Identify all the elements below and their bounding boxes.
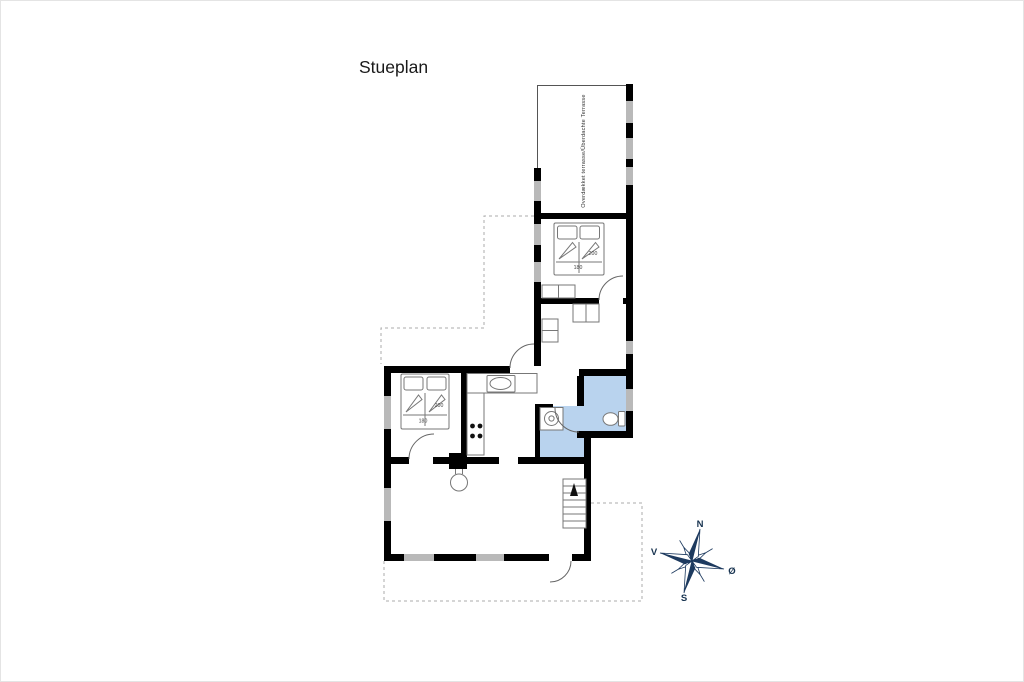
floor-plan-drawing: Stueplan	[1, 1, 1024, 682]
chimney	[449, 453, 467, 469]
wood-stove	[451, 469, 468, 491]
pillow	[580, 226, 600, 239]
double-bed-1: 200 180	[554, 223, 604, 275]
bed2-length-label: 200	[435, 403, 444, 409]
bedroom2-window	[384, 396, 391, 429]
closets	[542, 285, 599, 342]
kitchen-unit	[467, 374, 537, 456]
bathroom-floor	[579, 373, 626, 438]
bed1-width-label: 180	[574, 265, 583, 271]
compass-west-label: V	[651, 547, 658, 558]
bathroom-window	[626, 389, 633, 411]
bedroom1-window	[534, 262, 541, 282]
terrace-window	[626, 138, 633, 159]
terrace-window	[626, 101, 633, 123]
bed1-length-label: 200	[589, 251, 598, 257]
bedroom2-kitchen-divider	[461, 373, 467, 463]
bedroom1-door	[599, 276, 623, 300]
terrace-window	[626, 167, 633, 185]
hall-window	[626, 341, 633, 354]
entrance-door	[550, 561, 571, 582]
pillow	[558, 226, 578, 239]
double-bed-2: 200 180	[401, 374, 449, 429]
compass-south-label: S	[681, 593, 687, 604]
hall-door	[510, 344, 534, 368]
staircase	[563, 479, 586, 528]
pillow	[404, 377, 423, 390]
living-room-window	[384, 488, 391, 521]
pillow	[427, 377, 446, 390]
windows	[384, 101, 633, 561]
bedroom1-window	[534, 224, 541, 245]
covered-terrace-label: Overdækket terrasse/Überdachte Terrasse	[580, 94, 587, 207]
washing-machine	[540, 408, 563, 431]
kitchen-counter	[467, 393, 484, 455]
toilet-tank	[619, 412, 626, 427]
northwest-terrace-outline	[381, 216, 534, 364]
compass-star	[652, 521, 732, 601]
southeast-terrace-outline	[384, 503, 642, 601]
compass-north-label: N	[697, 519, 704, 530]
terrace-window	[534, 181, 541, 201]
floor-plan-page: Stueplan	[0, 0, 1024, 682]
toilet	[603, 412, 625, 427]
compass-east-label: Ø	[728, 566, 735, 577]
compass-rose: N Ø S V	[651, 519, 736, 604]
living-room-window	[404, 554, 434, 561]
page-title: Stueplan	[359, 57, 428, 77]
bedroom2-door	[409, 434, 434, 459]
bed2-width-label: 180	[419, 419, 428, 425]
living-room-window	[476, 554, 504, 561]
toilet-bowl	[603, 413, 618, 426]
